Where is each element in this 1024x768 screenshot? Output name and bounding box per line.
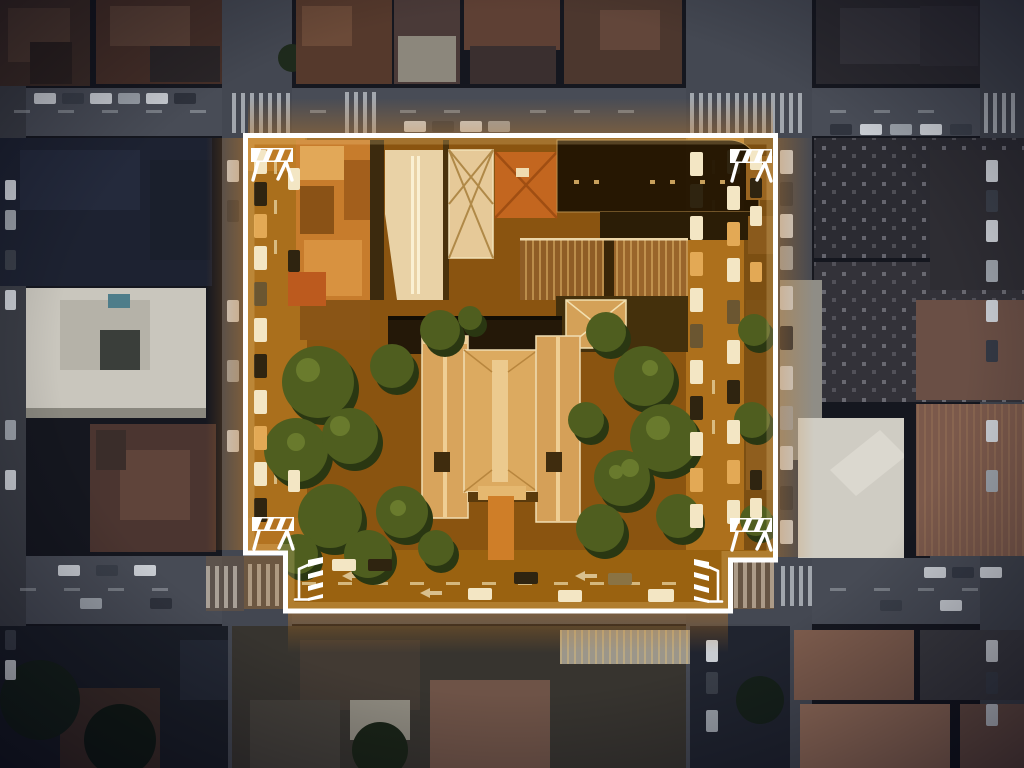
aerial-photo [0, 0, 1024, 768]
highlighted-block-region[interactable] [246, 136, 776, 612]
aerial-photo-stage [0, 0, 1024, 768]
